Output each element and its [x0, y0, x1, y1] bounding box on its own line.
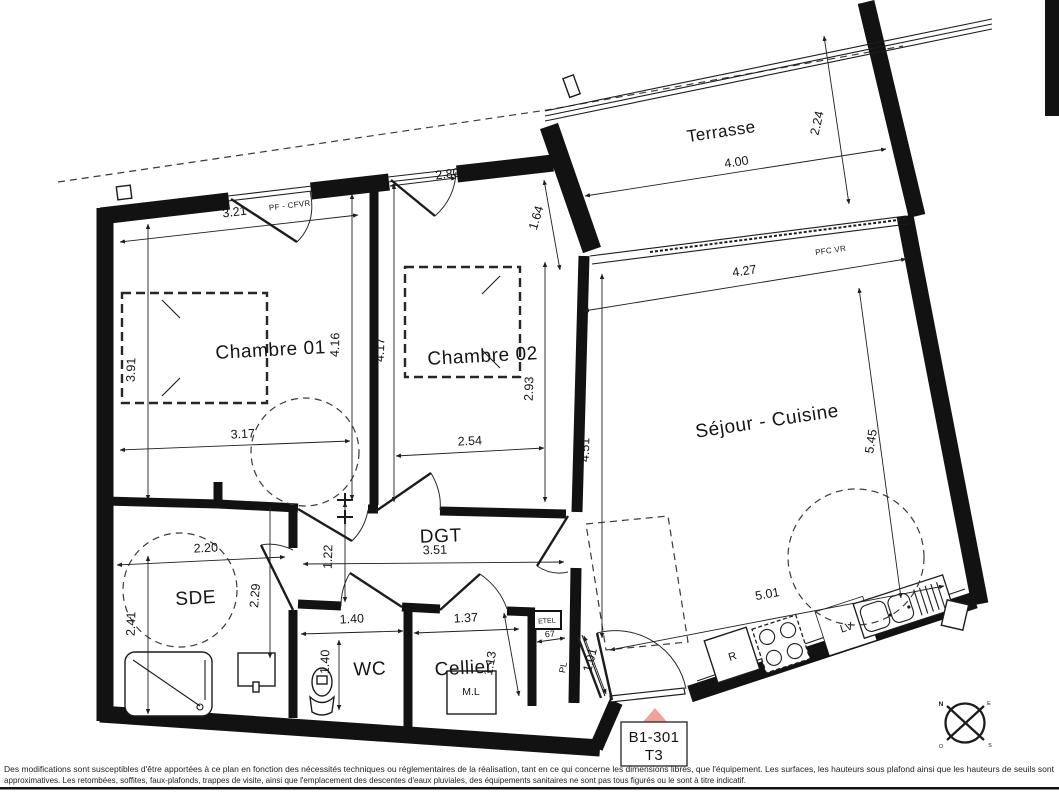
dim-chambre2-window: 2.80 — [435, 166, 461, 183]
unit-type: T3 — [645, 747, 663, 764]
room-terrasse: Terrasse — [686, 117, 757, 146]
dim-wc-depth: 1.40 — [318, 649, 333, 674]
entrance-triangle — [643, 708, 667, 722]
railing-post — [563, 75, 580, 98]
clearance-circle-chambre1 — [251, 398, 359, 506]
room-cellier: Cellier — [434, 656, 493, 680]
compass-south: S — [988, 743, 992, 749]
dim-sde-left: 2.41 — [124, 611, 139, 636]
dim-terrasse-wall: 1.64 — [526, 204, 547, 231]
compass-east: E — [987, 701, 991, 707]
dim-chambre2-left: 4.17 — [373, 337, 388, 362]
washbasin — [238, 653, 275, 692]
room-chambre1: Chambre 01 — [215, 337, 327, 364]
dim-chambre1-mid: 4.16 — [328, 332, 343, 357]
dim-chambre1-low: 3.17 — [230, 426, 255, 441]
tech-closet-etel: ETEL — [534, 611, 561, 629]
neighbor-wall-strip — [1045, 0, 1059, 116]
disclaimer-line2: approximatives. Les retombées, soffites,… — [4, 775, 746, 785]
closet-label: PL — [557, 661, 569, 674]
compass: N E S O — [939, 701, 993, 750]
unit-label: B1-301 T3 — [621, 722, 687, 766]
room-dgt: DGT — [420, 525, 463, 547]
dim-kitchen-width: 5.01 — [754, 585, 780, 603]
entrance-marker — [643, 708, 667, 722]
room-sejour: Séjour - Cuisine — [694, 400, 840, 442]
door-wc — [341, 573, 402, 607]
compass-west: O — [939, 744, 944, 750]
door-chambre1 — [298, 509, 368, 541]
dim-chambre1-window: 3.21 — [222, 204, 248, 221]
dim-sde-right: 2.29 — [247, 583, 263, 609]
roof-overhang-dashed — [58, 46, 903, 182]
dim-dgt-left: 1.22 — [321, 544, 336, 569]
dim-sejour-left: 4.51 — [578, 437, 593, 462]
dim-chambre2-right: 2.93 — [522, 376, 537, 401]
door-entrance — [597, 631, 686, 702]
shower-tray — [125, 652, 212, 716]
unit-code: B1-301 — [629, 729, 680, 746]
floor-plan-page: M.L ETEL R LV — [0, 0, 1059, 800]
footer-rule — [0, 787, 1059, 790]
dim-terrasse-depth: 2.24 — [808, 110, 827, 137]
sliding-bay-terrasse — [590, 216, 908, 264]
wall-niche — [941, 600, 968, 630]
room-sde: SDE — [175, 587, 217, 610]
door-cellier — [440, 574, 507, 610]
dim-sde-width: 2.20 — [193, 540, 218, 555]
room-wc: WC — [353, 658, 387, 680]
terrasse-railing — [545, 19, 992, 121]
door-chambre2 — [376, 473, 440, 511]
dim-etel-width: 67 — [545, 629, 556, 640]
disclaimer: Des modifications sont susceptibles d'êt… — [0, 764, 1059, 790]
dim-terrasse-width: 4.00 — [723, 153, 749, 170]
dashed-furniture — [122, 267, 924, 650]
vent-tab — [116, 185, 131, 200]
kitchen: R LV — [697, 575, 969, 683]
dim-sejour-right: 5.45 — [862, 428, 880, 454]
compass-north: N — [939, 701, 944, 708]
tech-closet-label: ETEL — [538, 618, 556, 626]
dim-wc-width: 1.40 — [339, 611, 364, 626]
washing-machine-label: M.L — [462, 686, 480, 698]
dim-bay-width: 4.27 — [731, 262, 757, 279]
dim-chambre2-low: 2.54 — [457, 433, 482, 448]
window-chambre1-label: PF - CFVR — [268, 199, 311, 213]
bay-label: PFC VR — [815, 244, 847, 257]
door-dgt-sejour — [537, 516, 568, 573]
dim-cellier-width: 1.37 — [453, 610, 478, 625]
door-sde — [261, 544, 293, 610]
dim-chambre1-left: 3.91 — [124, 357, 139, 382]
floor-plan-svg: M.L ETEL R LV — [0, 0, 1059, 800]
disclaimer-line1: Des modifications sont susceptibles d'êt… — [4, 764, 1055, 774]
room-labels: Terrasse Chambre 01 Chambre 02 Séjour - … — [175, 117, 841, 681]
room-chambre2: Chambre 02 — [427, 343, 539, 370]
furniture-sejour — [586, 516, 688, 650]
